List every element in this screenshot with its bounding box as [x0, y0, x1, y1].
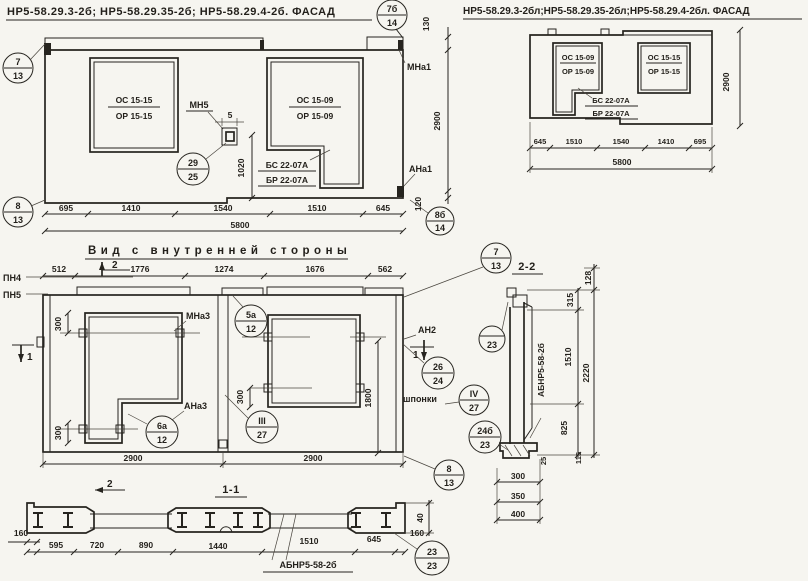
- svg-text:5а: 5а: [246, 310, 257, 320]
- svg-text:14: 14: [387, 18, 397, 28]
- svg-text:13: 13: [13, 71, 23, 81]
- svg-text:ОС 15-09: ОС 15-09: [297, 95, 334, 105]
- svg-text:ОС 15-15: ОС 15-15: [648, 53, 681, 62]
- blueprint-sheet: НР5-58.29.3-2б; НР5-58.29.35-2б; НР5-58.…: [0, 0, 808, 581]
- window-os15-15-r: ОС 15-15 ОР 15-15: [638, 43, 690, 93]
- opening-left: [58, 313, 200, 443]
- svg-text:23: 23: [427, 561, 437, 571]
- svg-text:БР 22-07А: БР 22-07А: [592, 109, 630, 118]
- svg-text:1410: 1410: [658, 137, 675, 146]
- internal-title: Вид с внутренней стороны: [88, 245, 351, 257]
- svg-text:2: 2: [107, 479, 113, 490]
- svg-text:ОР 15-15: ОР 15-15: [648, 67, 680, 76]
- facade-right-view: НР5-58.29.3-2бл;НР5-58.29.35-2бл;НР5-58.…: [463, 5, 802, 173]
- section-marker-1-left: 1: [12, 345, 34, 363]
- internal-view: Вид с внутренней стороны 512 1776 1274 1…: [3, 243, 511, 493]
- svg-text:7: 7: [15, 57, 20, 67]
- svg-text:1020: 1020: [236, 158, 246, 177]
- svg-text:40: 40: [415, 513, 425, 523]
- svg-text:2900: 2900: [432, 111, 442, 130]
- svg-text:720: 720: [90, 540, 104, 550]
- dims-bottom-facade-right: 645 1510 1540 1410 695 5800: [527, 122, 715, 173]
- svg-text:1: 1: [27, 352, 33, 363]
- svg-text:ОР 15-15: ОР 15-15: [116, 111, 153, 121]
- svg-text:БР 22-07А: БР 22-07А: [266, 175, 308, 185]
- dims-300: 300 300 300: [53, 310, 253, 446]
- svg-text:IV: IV: [470, 389, 479, 399]
- svg-text:14: 14: [435, 223, 445, 233]
- svg-text:1410: 1410: [122, 203, 141, 213]
- svg-text:160: 160: [14, 528, 28, 538]
- section-2-title: 2-2: [518, 261, 535, 273]
- callout-24b-23: 24б 23: [469, 421, 508, 453]
- svg-text:1510: 1510: [566, 137, 583, 146]
- svg-text:13: 13: [444, 478, 454, 488]
- svg-text:8: 8: [446, 464, 451, 474]
- dims-bottom-internal: 2900 2900: [40, 453, 406, 468]
- svg-text:ОР 15-09: ОР 15-09: [562, 67, 594, 76]
- svg-text:890: 890: [139, 540, 153, 550]
- svg-text:26: 26: [433, 362, 443, 372]
- svg-text:12: 12: [157, 435, 167, 445]
- dims-bottom-facade-left: 695 1410 1540 1510 645 5800: [42, 203, 406, 234]
- svg-text:645: 645: [367, 534, 381, 544]
- svg-text:1510: 1510: [300, 536, 319, 546]
- svg-text:115: 115: [574, 452, 583, 464]
- label-pn4: ПН4: [3, 273, 21, 283]
- dim-right-facade-left: 130 2900 120: [413, 17, 451, 211]
- facade-left-view: НР5-58.29.3-2б; НР5-58.29.35-2б; НР5-58.…: [3, 0, 454, 235]
- svg-text:400: 400: [511, 509, 525, 519]
- svg-text:27: 27: [257, 430, 267, 440]
- svg-text:ОС 15-09: ОС 15-09: [562, 53, 595, 62]
- svg-text:5: 5: [228, 110, 233, 120]
- svg-text:350: 350: [511, 491, 525, 501]
- anchor-mn5: МН5 5: [186, 100, 244, 145]
- svg-text:825: 825: [559, 421, 569, 435]
- svg-text:12: 12: [246, 324, 256, 334]
- callout-7-13-internal: 7 13: [404, 243, 511, 297]
- svg-text:1510: 1510: [308, 203, 327, 213]
- dims-section-2-bottom: 300 350 400: [494, 459, 543, 524]
- dim-right-facade-right: 2900: [721, 27, 743, 129]
- label-mna3: МНа3: [186, 311, 210, 321]
- dim-1800: 1800: [363, 338, 381, 456]
- window-os15-15: ОС 15-15 ОР 15-15: [90, 58, 178, 152]
- svg-text:300: 300: [511, 471, 525, 481]
- callout-iii-27: III 27: [225, 395, 278, 443]
- svg-text:8: 8: [15, 201, 20, 211]
- label-pn5: ПН5: [3, 290, 21, 300]
- section-1-1: 1-1 160: [8, 484, 449, 575]
- section-2-mark: АБНР5-58-2б: [536, 343, 546, 397]
- svg-text:23: 23: [487, 340, 497, 350]
- facade-right-title: НР5-58.29.3-2бл;НР5-58.29.35-2бл;НР5-58.…: [463, 5, 750, 17]
- svg-text:645: 645: [376, 203, 390, 213]
- label-ana3: АНа3: [184, 401, 207, 411]
- facade-left-title: НР5-58.29.3-2б; НР5-58.29.35-2б; НР5-58.…: [7, 6, 335, 18]
- callout-23: 23: [479, 302, 508, 352]
- label-ana1: АНа1: [409, 164, 432, 174]
- label-mna1: МНа1: [407, 62, 431, 72]
- section-1-title: 1-1: [222, 484, 239, 496]
- svg-text:695: 695: [694, 137, 707, 146]
- svg-text:25: 25: [188, 172, 198, 182]
- svg-text:2: 2: [112, 260, 118, 271]
- svg-text:13: 13: [491, 261, 501, 271]
- callout-8-13-internal: 8 13: [404, 456, 464, 490]
- svg-text:ОС 15-15: ОС 15-15: [116, 95, 153, 105]
- channel-anchors: [33, 513, 391, 527]
- svg-text:III: III: [258, 416, 266, 426]
- callout-iv-27: IV 27: [445, 385, 489, 415]
- svg-text:2900: 2900: [304, 453, 323, 463]
- callout-26-24: 26 24: [403, 344, 454, 389]
- svg-text:13: 13: [13, 215, 23, 225]
- svg-text:130: 130: [421, 17, 431, 31]
- callout-8-13: 8 13: [3, 197, 45, 227]
- svg-text:23: 23: [427, 547, 437, 557]
- svg-text:24: 24: [433, 376, 443, 386]
- svg-text:23: 23: [480, 440, 490, 450]
- label-shponki: шпонки: [403, 394, 437, 404]
- callout-7b-14: 7б 14: [377, 0, 407, 38]
- svg-text:1776: 1776: [131, 264, 150, 274]
- svg-text:1440: 1440: [209, 541, 228, 551]
- svg-text:1676: 1676: [306, 264, 325, 274]
- svg-text:7: 7: [493, 247, 498, 257]
- svg-text:128: 128: [583, 271, 593, 285]
- svg-text:1540: 1540: [613, 137, 630, 146]
- section-2-2: 2-2 АБНР5-58-2б 128 315: [469, 261, 600, 524]
- svg-text:5800: 5800: [613, 157, 632, 167]
- svg-text:24б: 24б: [477, 426, 493, 436]
- svg-text:315: 315: [565, 293, 575, 307]
- panel-drawing: НР5-58.29.3-2б; НР5-58.29.35-2б; НР5-58.…: [0, 0, 808, 581]
- callout-7-13: 7 13: [3, 44, 45, 83]
- svg-text:29: 29: [188, 158, 198, 168]
- svg-text:8б: 8б: [435, 210, 446, 220]
- svg-text:6а: 6а: [157, 421, 168, 431]
- section-marker-1-right: 1: [410, 340, 434, 361]
- label-an2: АН2: [418, 325, 436, 335]
- svg-text:1510: 1510: [563, 347, 573, 366]
- svg-text:2220: 2220: [581, 363, 591, 382]
- svg-text:300: 300: [53, 317, 63, 331]
- svg-text:ОР 15-09: ОР 15-09: [297, 111, 334, 121]
- svg-text:595: 595: [49, 540, 63, 550]
- svg-text:БС 22-07А: БС 22-07А: [592, 96, 630, 105]
- svg-text:5800: 5800: [231, 220, 250, 230]
- svg-text:МН5: МН5: [189, 100, 208, 110]
- svg-text:1540: 1540: [214, 203, 233, 213]
- svg-text:БС 22-07А: БС 22-07А: [266, 160, 308, 170]
- svg-text:АБНР5-58-2б: АБНР5-58-2б: [279, 560, 336, 570]
- svg-text:695: 695: [59, 203, 73, 213]
- callout-23-23: 23 23: [394, 533, 449, 575]
- svg-text:512: 512: [52, 264, 66, 274]
- callout-6a-12: 6а 12: [128, 414, 178, 448]
- callout-29-25: 29 25: [177, 143, 226, 185]
- svg-text:27: 27: [469, 403, 479, 413]
- section-marker-2-top: 2: [99, 260, 130, 276]
- svg-text:300: 300: [53, 426, 63, 440]
- svg-text:1800: 1800: [363, 388, 373, 407]
- callout-5a-12: 5а 12: [233, 296, 267, 337]
- svg-text:2900: 2900: [721, 72, 731, 91]
- svg-text:562: 562: [378, 264, 392, 274]
- dim-1020: 1020: [236, 132, 255, 201]
- section-marker-2-bottom: 2: [95, 479, 125, 493]
- svg-text:2900: 2900: [124, 453, 143, 463]
- svg-text:7б: 7б: [387, 4, 398, 14]
- svg-text:300: 300: [235, 390, 245, 404]
- svg-text:645: 645: [534, 137, 547, 146]
- svg-text:120: 120: [413, 197, 423, 211]
- svg-text:1274: 1274: [215, 264, 234, 274]
